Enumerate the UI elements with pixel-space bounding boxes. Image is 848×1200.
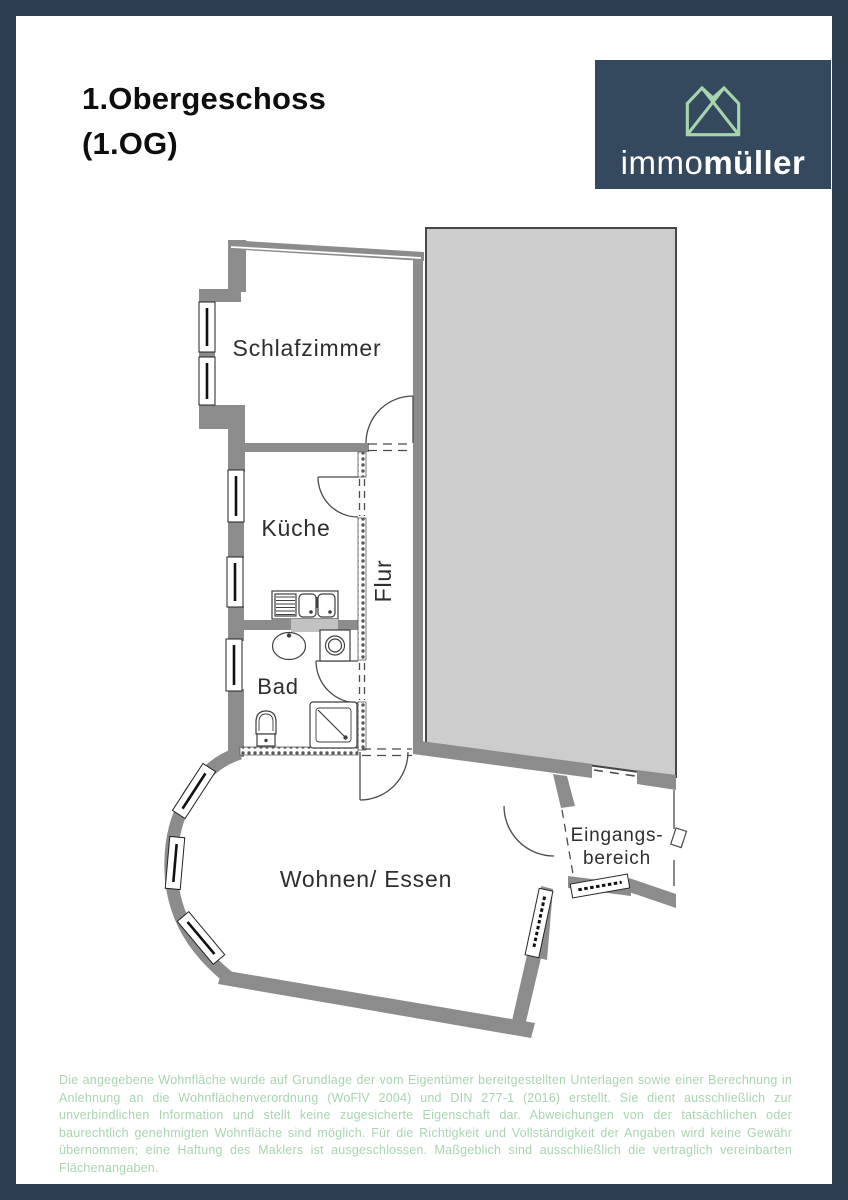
shower xyxy=(310,702,357,748)
brand-name-light: immo xyxy=(621,144,704,181)
room-label-hall: Flur xyxy=(370,560,396,603)
house-gables-icon xyxy=(667,76,759,142)
room-label-living: Wohnen/ Essen xyxy=(280,866,452,892)
kitchen-sink-unit xyxy=(272,591,338,619)
room-label-entrance-2: bereich xyxy=(583,848,651,869)
window-icon xyxy=(172,763,215,818)
brand-logo: immomüller xyxy=(595,60,831,189)
room-label-bedroom: Schlafzimmer xyxy=(233,335,382,361)
brand-name-bold: müller xyxy=(703,144,805,181)
room-label-kitchen: Küche xyxy=(261,515,330,541)
window-icon xyxy=(227,557,243,607)
floorplan: Schlafzimmer Küche Flur Bad Wohnen/ Esse… xyxy=(150,210,710,1060)
toilet xyxy=(256,711,276,746)
washing-machine xyxy=(320,630,350,661)
room-label-entrance-1: Eingangs- xyxy=(571,825,664,846)
title-line-2: (1.OG) xyxy=(82,121,326,166)
room-label-bath: Bad xyxy=(257,674,299,699)
window-icon xyxy=(199,357,215,405)
fixtures xyxy=(256,591,357,748)
window-icon xyxy=(228,470,244,522)
window-icon xyxy=(199,302,215,352)
window-icon xyxy=(226,639,242,691)
title-line-1: 1.Obergeschoss xyxy=(82,76,326,121)
brand-name: immomüller xyxy=(621,146,806,179)
disclaimer-text: Die angegebene Wohnfläche wurde auf Grun… xyxy=(59,1072,792,1178)
adjacent-building xyxy=(426,228,676,777)
page-title: 1.Obergeschoss (1.OG) xyxy=(82,76,326,166)
washbasin xyxy=(273,633,306,660)
